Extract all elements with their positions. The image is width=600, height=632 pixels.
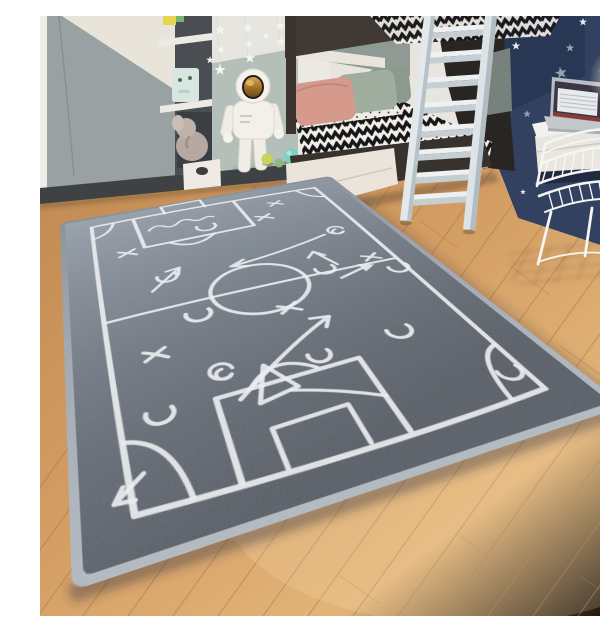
yellow-toy	[163, 16, 176, 25]
bed-post	[286, 16, 296, 134]
toy-drawer-box	[183, 159, 221, 190]
gold-visor	[244, 77, 262, 97]
wardrobe-door-edge	[40, 16, 47, 188]
mint-box	[172, 68, 199, 102]
room-photo: Gray children's rug printed with a white…	[40, 16, 600, 616]
